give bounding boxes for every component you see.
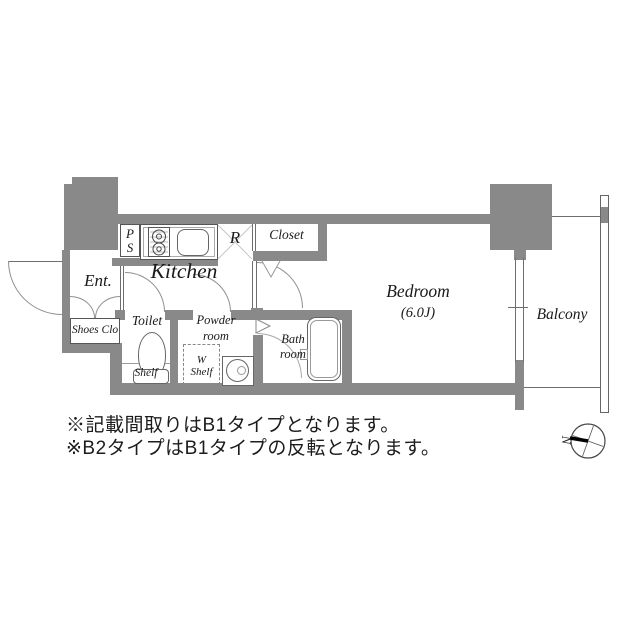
bedroom-label: Bedroom	[372, 282, 464, 301]
refrigerator-label: R	[217, 229, 253, 248]
bath-room-label-line2: room	[262, 348, 324, 362]
shoes-closet-label: Shoes Clo	[70, 324, 120, 337]
entrance-label: Ent.	[68, 272, 128, 291]
bedroom-size-label: (6.0J)	[378, 306, 458, 322]
note-line-1: ※記載間取りはB1タイプとなります。	[66, 414, 440, 437]
closet-folding-door-icon	[262, 261, 280, 277]
powder-room-label-line1: Powder	[178, 314, 254, 328]
notes-block: ※記載間取りはB1タイプとなります。 ※B2タイプはB1タイプの反転となります。	[66, 414, 440, 460]
bath-room-label-line1: Bath	[262, 333, 324, 347]
compass-icon: N	[559, 424, 605, 458]
balcony-label: Balcony	[526, 306, 598, 323]
toilet-shelf-label: Shelf	[126, 367, 166, 380]
closet-label: Closet	[255, 228, 318, 243]
compass-north-label: N	[559, 435, 574, 446]
toilet-label: Toilet	[124, 314, 170, 329]
bath-folding-door-icon	[256, 319, 270, 333]
note-line-2: ※B2タイプはB1タイプの反転となります。	[66, 437, 440, 460]
powder-room-label-line2: room	[178, 330, 254, 344]
kitchen-label: Kitchen	[140, 260, 228, 284]
floor-plan: P S W Shelf	[0, 0, 640, 640]
stove-icon	[149, 228, 170, 257]
